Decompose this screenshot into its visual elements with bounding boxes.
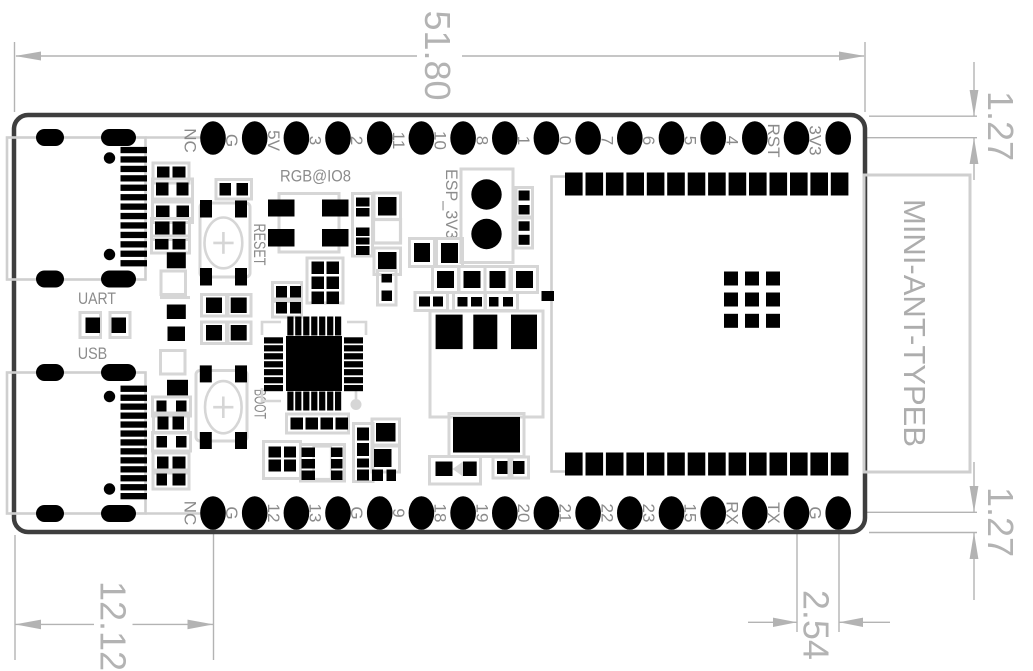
svg-text:5V: 5V — [264, 130, 283, 151]
svg-text:NC: NC — [181, 501, 200, 526]
svg-text:19: 19 — [472, 504, 491, 523]
svg-text:ESP_3V3: ESP_3V3 — [442, 169, 460, 239]
svg-text:NC: NC — [181, 128, 200, 153]
svg-text:1: 1 — [514, 136, 533, 145]
svg-text:3: 3 — [306, 136, 325, 145]
svg-text:BOOT: BOOT — [251, 389, 269, 419]
svg-text:51.80: 51.80 — [417, 10, 458, 100]
svg-text:15: 15 — [681, 504, 700, 523]
svg-text:G: G — [222, 506, 241, 519]
svg-text:23: 23 — [639, 504, 658, 523]
svg-text:8: 8 — [472, 136, 491, 145]
svg-text:12: 12 — [264, 504, 283, 523]
svg-text:2: 2 — [347, 136, 366, 145]
svg-text:RX: RX — [722, 501, 741, 525]
svg-text:3V3: 3V3 — [806, 125, 825, 155]
svg-text:21: 21 — [556, 504, 575, 523]
svg-text:USB: USB — [78, 345, 108, 363]
svg-text:4: 4 — [722, 136, 741, 145]
svg-text:2.54: 2.54 — [796, 590, 837, 660]
svg-text:7: 7 — [597, 136, 616, 145]
svg-text:TX: TX — [764, 502, 783, 524]
svg-text:13: 13 — [306, 504, 325, 523]
svg-text:11: 11 — [389, 132, 408, 150]
svg-text:UART: UART — [78, 290, 116, 308]
svg-text:RGB@IO8: RGB@IO8 — [280, 168, 351, 186]
svg-text:0: 0 — [556, 136, 575, 145]
svg-text:9: 9 — [389, 508, 408, 517]
svg-text:1.27: 1.27 — [980, 487, 1021, 557]
svg-text:22: 22 — [597, 504, 616, 523]
svg-text:5: 5 — [681, 136, 700, 145]
svg-text:RESET: RESET — [250, 224, 268, 266]
svg-text:G: G — [806, 506, 825, 519]
svg-text:18: 18 — [431, 504, 450, 523]
svg-text:20: 20 — [514, 504, 533, 523]
svg-text:G: G — [222, 134, 241, 147]
svg-text:1.27: 1.27 — [980, 91, 1021, 161]
svg-text:12.12: 12.12 — [93, 581, 134, 671]
svg-text:G: G — [347, 506, 366, 519]
svg-text:RST: RST — [764, 124, 783, 158]
svg-text:6: 6 — [639, 136, 658, 145]
svg-text:MINI-ANT-TYPEB: MINI-ANT-TYPEB — [897, 199, 932, 447]
svg-text:10: 10 — [431, 131, 450, 150]
